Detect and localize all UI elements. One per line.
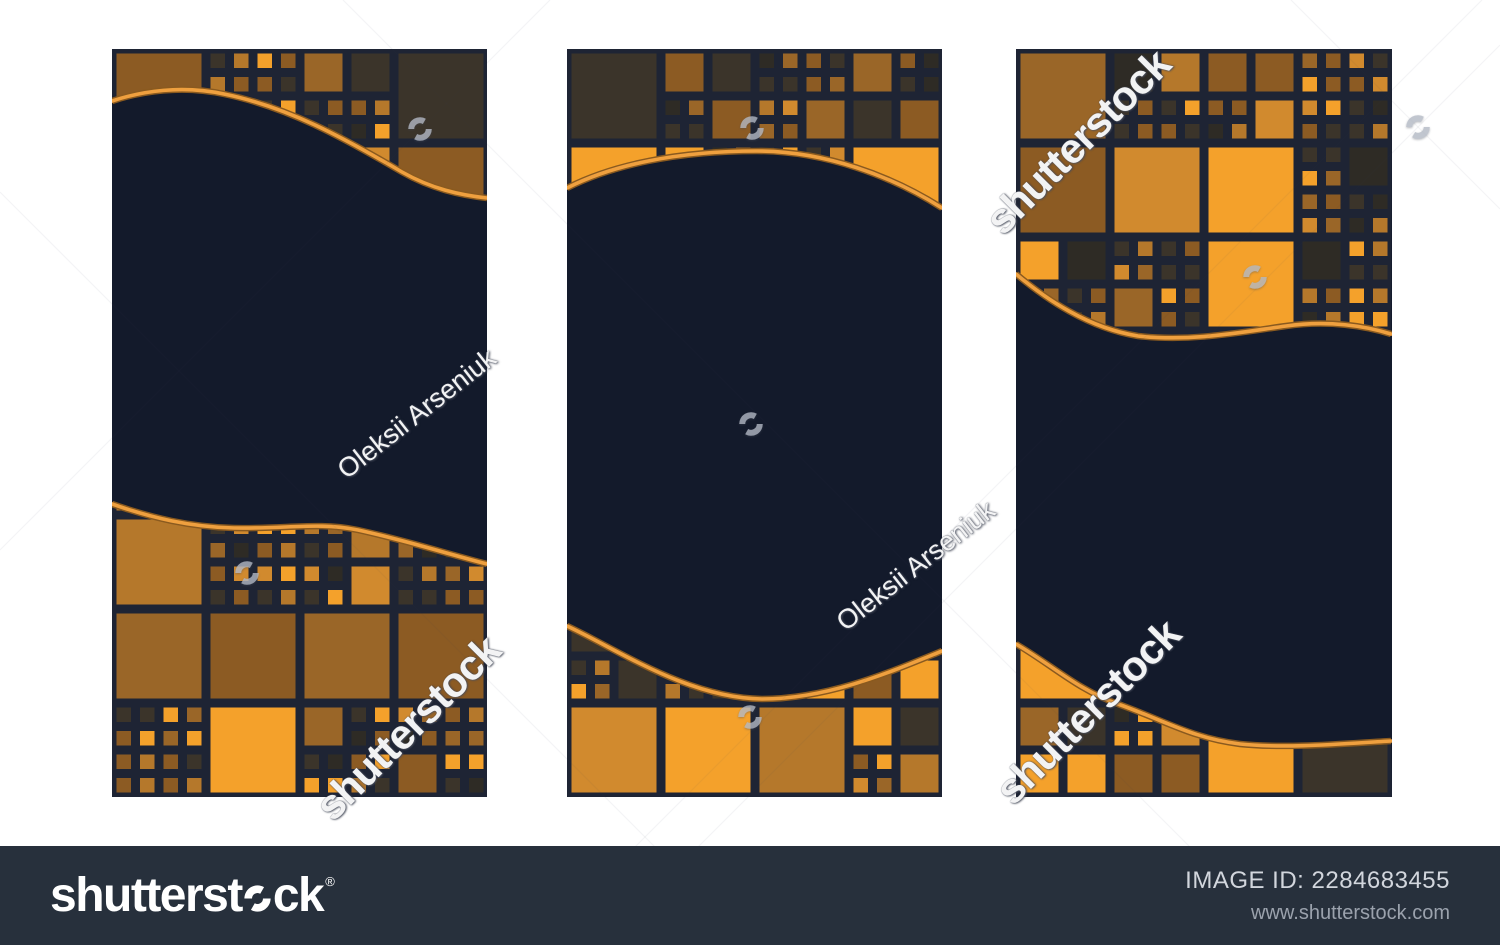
banner-panel-2 [567,49,942,797]
footer-meta: IMAGE ID: 2284683455 www.shutterstock.co… [1185,866,1450,926]
stock-image-preview: shutterstockshutterstockshutterstockOlek… [0,0,1500,945]
logo-text-prefix: shutterst [50,872,242,920]
banner-panel-1 [112,49,487,797]
website-text: www.shutterstock.com [1185,901,1450,926]
logo-text-suffix: ck [273,872,323,920]
shutterstock-o-icon [244,883,271,914]
banner-panel-3 [1016,49,1392,797]
shutterstock-logo: shutterst ck ® [50,872,331,920]
registered-mark: ® [325,875,333,888]
shutterstock-s-icon [1406,111,1430,143]
footer-bar: shutterst ck ® IMAGE ID: 2284683455 www.… [0,846,1500,945]
image-id-text: IMAGE ID: 2284683455 [1185,866,1450,896]
